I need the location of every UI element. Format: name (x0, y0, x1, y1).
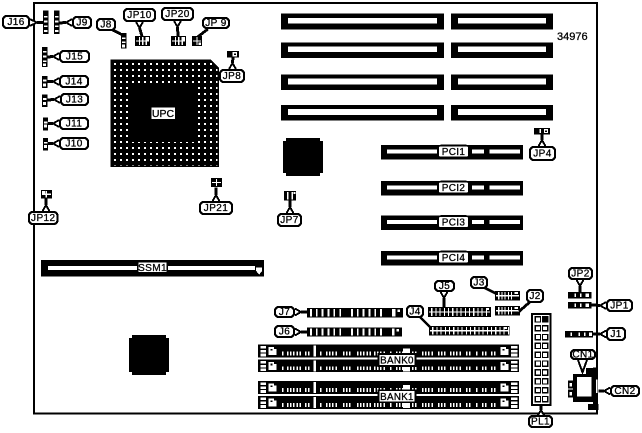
svg-text:J3: J3 (473, 277, 484, 288)
svg-text:CN2: CN2 (614, 386, 635, 397)
svg-text:J7: J7 (279, 307, 290, 318)
svg-text:J6: J6 (279, 326, 290, 337)
svg-text:JP1: JP1 (610, 300, 628, 311)
svg-text:J14: J14 (65, 76, 82, 87)
svg-text:SSM1: SSM1 (138, 263, 167, 274)
svg-text:JP7: JP7 (280, 215, 298, 226)
svg-text:J16: J16 (7, 17, 24, 28)
svg-text:34976: 34976 (557, 31, 588, 43)
svg-text:PCI4: PCI4 (442, 253, 466, 264)
svg-text:BANK0: BANK0 (380, 356, 414, 367)
svg-text:PCI2: PCI2 (442, 183, 466, 194)
svg-text:JP2: JP2 (571, 268, 589, 279)
svg-text:JP4: JP4 (533, 148, 551, 159)
svg-text:J11: J11 (66, 118, 83, 129)
svg-text:PCI1: PCI1 (442, 147, 466, 158)
svg-text:J10: J10 (65, 138, 82, 149)
svg-text:JP12: JP12 (31, 213, 55, 224)
svg-text:JP21: JP21 (204, 203, 228, 214)
svg-text:J8: J8 (100, 19, 111, 30)
svg-text:JP10: JP10 (127, 10, 151, 21)
svg-text:J13: J13 (66, 94, 83, 105)
svg-text:J1: J1 (610, 329, 621, 340)
svg-text:JP 9: JP 9 (205, 18, 226, 29)
svg-text:J15: J15 (66, 51, 83, 62)
svg-text:J9: J9 (76, 17, 87, 28)
svg-text:JP8: JP8 (223, 71, 241, 82)
svg-text:CN1: CN1 (572, 349, 593, 360)
svg-text:J2: J2 (529, 291, 540, 302)
svg-text:PL1: PL1 (531, 416, 550, 427)
svg-text:BANK1: BANK1 (380, 392, 414, 403)
svg-text:JP20: JP20 (165, 9, 189, 20)
svg-text:PCI3: PCI3 (442, 218, 466, 229)
svg-text:J5: J5 (439, 281, 450, 292)
svg-text:UPC: UPC (152, 108, 175, 120)
svg-text:J4: J4 (409, 306, 420, 317)
